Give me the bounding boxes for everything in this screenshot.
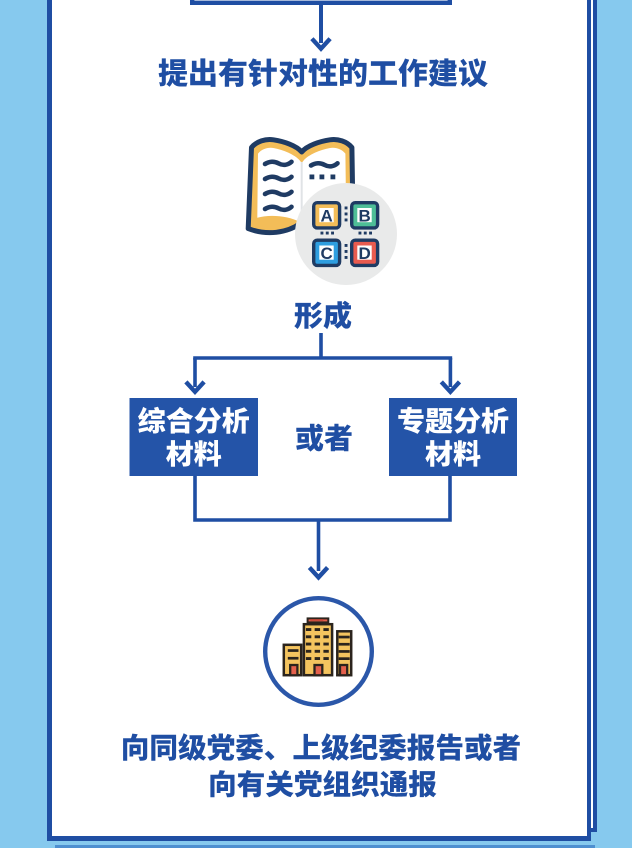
svg-text:D: D <box>358 244 370 263</box>
svg-text:C: C <box>320 244 332 263</box>
svg-text:B: B <box>358 207 370 226</box>
svg-text:A: A <box>320 207 332 226</box>
